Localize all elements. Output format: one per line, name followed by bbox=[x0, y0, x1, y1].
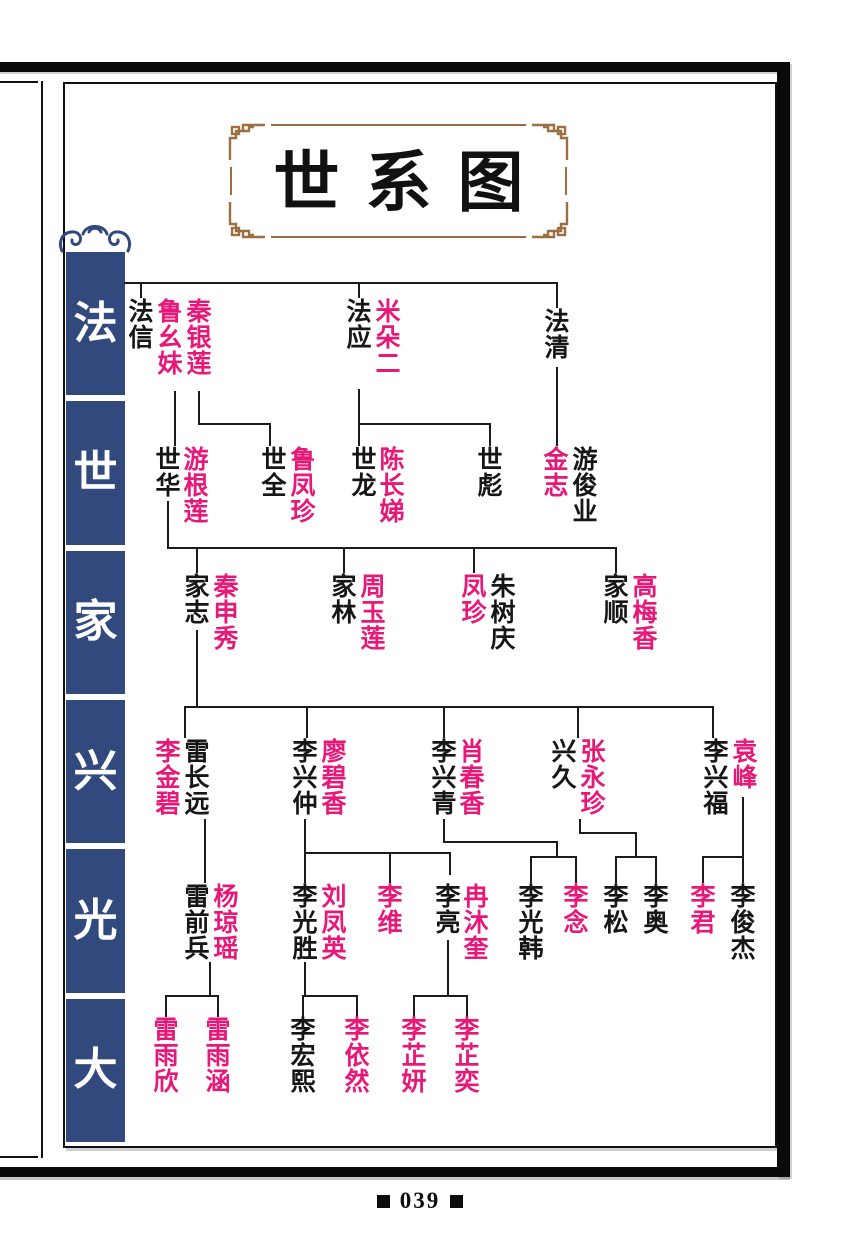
person-name: 游俊业 bbox=[571, 448, 599, 526]
connector-line bbox=[473, 547, 475, 573]
connector-line bbox=[530, 856, 532, 883]
person-name: 家志 bbox=[183, 575, 211, 627]
person-name: 雷雨涵 bbox=[204, 1018, 232, 1096]
person-name: 李兴福 bbox=[702, 740, 730, 818]
person-name: 冉沐奎 bbox=[462, 885, 490, 963]
connector-line bbox=[742, 797, 744, 883]
connector-line bbox=[615, 856, 617, 883]
person-name: 法信 bbox=[127, 300, 155, 352]
connector-line bbox=[413, 995, 468, 997]
person-name: 张永珍 bbox=[579, 740, 607, 818]
connector-line bbox=[356, 995, 358, 1017]
connector-line bbox=[556, 367, 558, 446]
person-name: 秦银莲 bbox=[185, 300, 213, 378]
person-name: 法应 bbox=[345, 300, 373, 352]
person-name: 李光胜 bbox=[291, 885, 319, 963]
person-name: 朱树庆 bbox=[489, 575, 517, 653]
connector-line bbox=[304, 819, 306, 883]
connector-line bbox=[389, 852, 391, 883]
connector-line bbox=[635, 832, 637, 858]
connector-line bbox=[167, 547, 617, 549]
connector-line bbox=[443, 706, 445, 738]
connector-line bbox=[184, 706, 186, 738]
connector-line bbox=[702, 856, 704, 883]
person-name: 袁峰 bbox=[731, 740, 759, 792]
connector-line bbox=[447, 940, 449, 997]
person-name: 李芷妍 bbox=[400, 1018, 428, 1096]
connector-line bbox=[124, 282, 558, 284]
person-name: 家顺 bbox=[602, 575, 630, 627]
connector-line bbox=[530, 856, 577, 858]
person-name: 雷雨欣 bbox=[152, 1018, 180, 1096]
connector-line bbox=[198, 391, 200, 425]
connector-line bbox=[174, 391, 176, 446]
person-name: 凤珍 bbox=[460, 575, 488, 627]
connector-line bbox=[269, 423, 271, 446]
person-name: 李兴仲 bbox=[291, 740, 319, 818]
connector-line bbox=[413, 995, 415, 1017]
connector-line bbox=[702, 856, 744, 858]
connector-line bbox=[140, 282, 142, 298]
person-name: 李依然 bbox=[343, 1018, 371, 1096]
connector-line bbox=[167, 501, 169, 549]
connector-line bbox=[304, 852, 451, 854]
connector-line bbox=[217, 995, 219, 1017]
person-name: 游根莲 bbox=[182, 448, 210, 526]
connector-line bbox=[198, 423, 271, 425]
connector-line bbox=[449, 852, 451, 875]
person-name: 李俊杰 bbox=[729, 885, 757, 963]
connector-line bbox=[579, 832, 637, 834]
person-name: 鲁幺妹 bbox=[156, 300, 184, 378]
person-name: 李君 bbox=[689, 885, 717, 937]
connector-line bbox=[204, 819, 206, 883]
person-name: 米朵二 bbox=[374, 300, 402, 378]
person-name: 世华 bbox=[154, 448, 182, 500]
person-name: 雷前兵 bbox=[183, 885, 211, 963]
person-name: 秦申秀 bbox=[212, 575, 240, 653]
connector-line bbox=[358, 389, 360, 446]
person-name: 李兴青 bbox=[430, 740, 458, 818]
connector-line bbox=[466, 995, 468, 1017]
connector-line bbox=[489, 423, 491, 446]
person-name: 李宏熙 bbox=[289, 1018, 317, 1096]
person-name: 刘凤英 bbox=[320, 885, 348, 963]
person-name: 家林 bbox=[330, 575, 358, 627]
connector-line bbox=[615, 547, 617, 573]
person-name: 李金碧 bbox=[154, 740, 182, 818]
connector-line bbox=[343, 547, 345, 573]
connector-line bbox=[165, 995, 167, 1017]
person-name: 李念 bbox=[562, 885, 590, 937]
person-name: 廖碧香 bbox=[320, 740, 348, 818]
person-name: 李维 bbox=[376, 885, 404, 937]
person-name: 李松 bbox=[602, 885, 630, 937]
connector-line bbox=[304, 962, 306, 997]
connector-line bbox=[575, 856, 577, 883]
person-name: 法清 bbox=[543, 310, 571, 362]
connector-line bbox=[302, 995, 358, 997]
person-name: 兴久 bbox=[550, 740, 578, 792]
person-name: 世龙 bbox=[350, 448, 378, 500]
connector-line bbox=[184, 706, 714, 708]
book-page: { "page": { "title": "世系图", "number": "0… bbox=[0, 0, 857, 1241]
person-name: 陈长娣 bbox=[378, 448, 406, 526]
person-name: 杨琼瑶 bbox=[212, 885, 240, 963]
person-name: 李光韩 bbox=[517, 885, 545, 963]
connector-line bbox=[556, 282, 558, 308]
person-name: 鲁凤珍 bbox=[289, 448, 317, 526]
person-name: 雷长远 bbox=[183, 740, 211, 818]
connector-line bbox=[358, 282, 360, 298]
connector-line bbox=[165, 995, 219, 997]
connector-line bbox=[443, 819, 445, 843]
person-name: 世全 bbox=[260, 448, 288, 500]
person-name: 周玉莲 bbox=[359, 575, 387, 653]
connector-line bbox=[712, 706, 714, 738]
connector-line bbox=[358, 423, 491, 425]
connector-line bbox=[209, 962, 211, 997]
connector-line bbox=[615, 856, 657, 858]
person-name: 李芷奕 bbox=[453, 1018, 481, 1096]
connector-line bbox=[443, 841, 558, 843]
person-name: 金志 bbox=[542, 448, 570, 500]
connector-line bbox=[577, 706, 579, 738]
person-name: 高梅香 bbox=[631, 575, 659, 653]
connector-line bbox=[655, 856, 657, 883]
person-name: 李亮 bbox=[434, 885, 462, 937]
person-name: 世彪 bbox=[476, 448, 504, 500]
connector-line bbox=[302, 995, 304, 1017]
person-name: 李奥 bbox=[642, 885, 670, 937]
person-name: 肖春香 bbox=[458, 740, 486, 818]
connector-line bbox=[196, 630, 198, 708]
connector-line bbox=[306, 706, 308, 738]
family-tree: 法信鲁幺妹秦银莲法应米朵二法清世华游根莲世全鲁凤珍世龙陈长娣世彪金志游俊业家志秦… bbox=[0, 0, 857, 1241]
connector-line bbox=[196, 547, 198, 573]
